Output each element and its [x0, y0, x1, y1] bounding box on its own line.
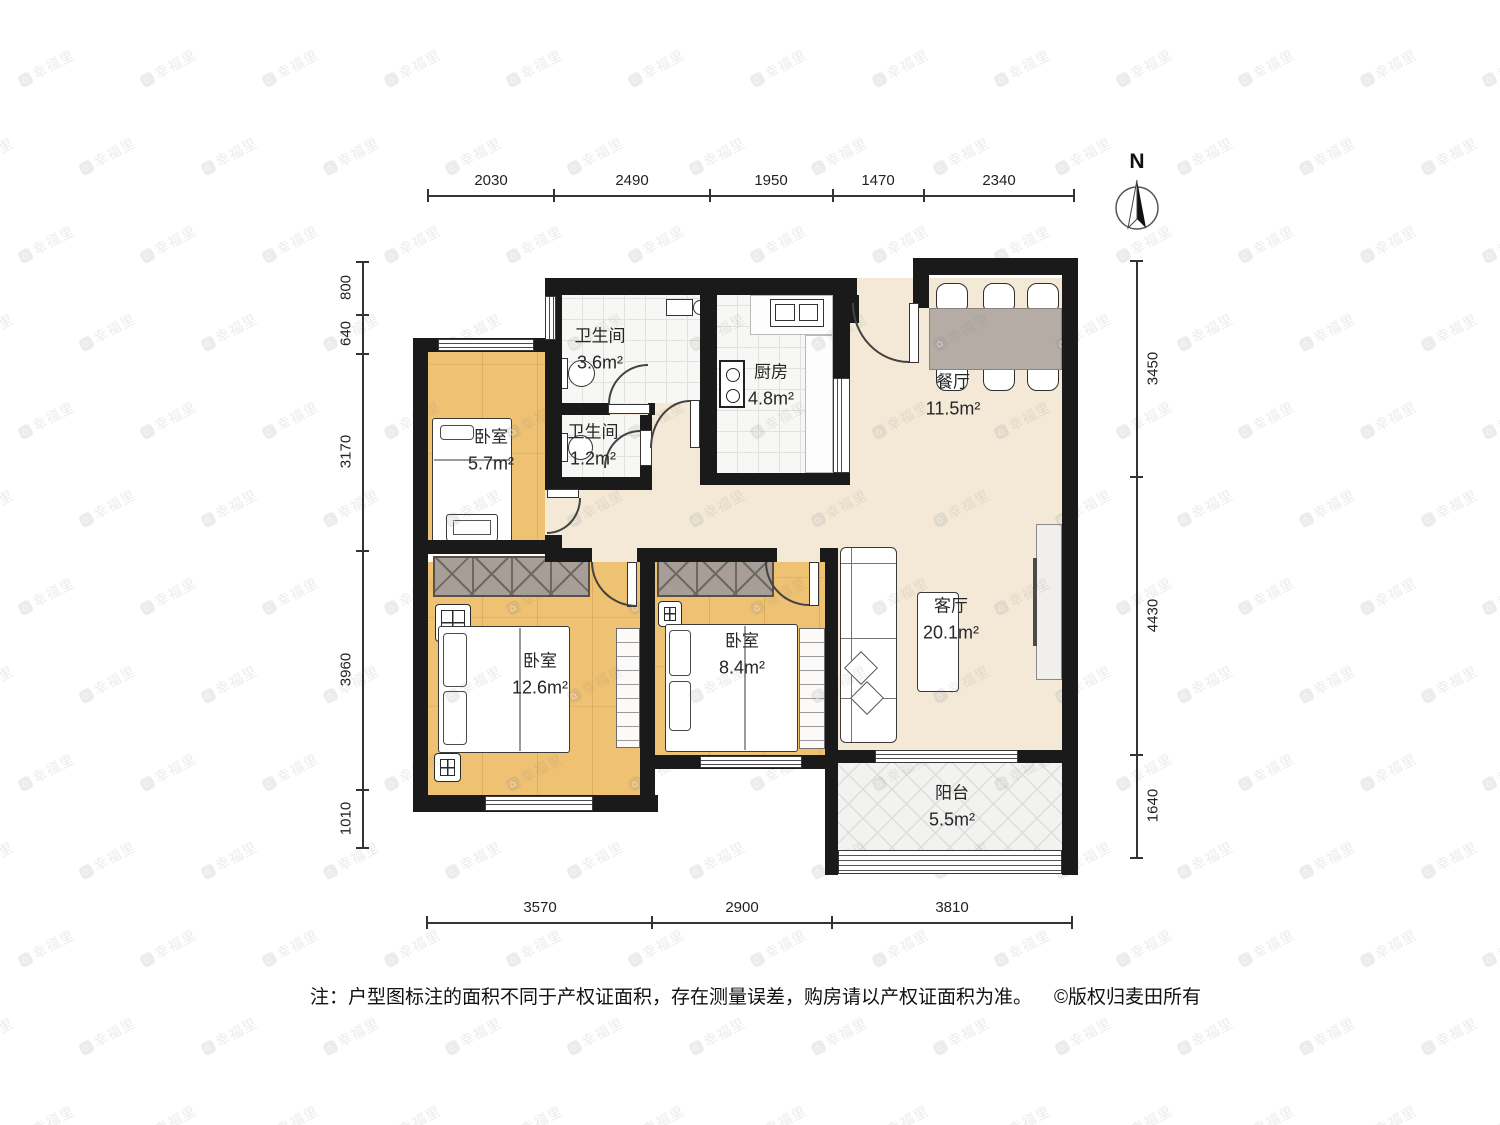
watermark-item: 幸福里 — [137, 1101, 200, 1125]
watermark-item: 幸福里 — [259, 221, 322, 267]
watermark-item: 幸福里 — [259, 573, 322, 619]
watermark-text: 幸福里 — [0, 1015, 16, 1050]
watermark-text: 幸福里 — [91, 663, 138, 698]
watermark-item: 幸福里 — [0, 0, 17, 3]
xingfuli-logo-icon — [200, 863, 218, 881]
xingfuli-logo-icon — [78, 1039, 96, 1057]
watermark-item: 幸福里 — [1113, 1101, 1176, 1125]
xingfuli-logo-icon — [444, 863, 462, 881]
watermark-text: 幸福里 — [274, 47, 321, 82]
door-leaf-entry — [909, 303, 919, 363]
xingfuli-logo-icon — [383, 423, 401, 441]
stove — [719, 360, 745, 408]
watermark-item: 幸福里 — [503, 1101, 566, 1125]
xingfuli-logo-icon — [688, 863, 706, 881]
xingfuli-logo-icon — [1176, 687, 1194, 705]
room-name: 客厅 — [923, 595, 979, 620]
watermark-item: 幸福里 — [1357, 925, 1420, 971]
stand-inset — [453, 520, 491, 535]
wall — [825, 548, 838, 875]
door-leaf — [640, 430, 652, 466]
watermark-item: 幸福里 — [869, 1101, 932, 1125]
room-label-bedroom-north: 卧室 5.7m² — [468, 426, 514, 477]
sofa — [840, 547, 897, 743]
watermark-item: 幸福里 — [747, 1101, 810, 1125]
watermark-item: 幸福里 — [15, 221, 78, 267]
watermark-text: 幸福里 — [1128, 927, 1175, 962]
wall — [413, 338, 428, 812]
watermark-text: 幸福里 — [30, 927, 77, 962]
watermark-text: 幸福里 — [518, 1103, 565, 1125]
watermark-text: 幸福里 — [91, 1015, 138, 1050]
xingfuli-logo-icon — [1298, 511, 1316, 529]
wall — [545, 403, 610, 415]
room-name: 厨房 — [748, 361, 794, 386]
wall — [825, 750, 875, 763]
watermark-text: 幸福里 — [213, 1015, 260, 1050]
watermark-item: 幸福里 — [15, 749, 78, 795]
watermark-item: 幸福里 — [1296, 485, 1359, 531]
watermark-text: 幸福里 — [945, 135, 992, 170]
watermark-item: 幸福里 — [1174, 309, 1237, 355]
watermark-item: 幸福里 — [1418, 0, 1481, 3]
xingfuli-logo-icon — [566, 863, 584, 881]
watermark-text: 幸福里 — [396, 927, 443, 962]
watermark-item: 幸福里 — [930, 0, 993, 3]
watermark-item: 幸福里 — [1296, 837, 1359, 883]
watermark-text: 幸福里 — [457, 1015, 504, 1050]
watermark-text: 幸福里 — [1189, 135, 1236, 170]
dim-value: 2340 — [959, 172, 1039, 189]
watermark-item: 幸福里 — [76, 485, 139, 531]
watermark-text: 幸福里 — [274, 927, 321, 962]
xingfuli-logo-icon — [1115, 247, 1133, 265]
watermark-item: 幸福里 — [1357, 45, 1420, 91]
watermark-item: 幸福里 — [991, 1101, 1054, 1125]
watermark-text: 幸福里 — [640, 1103, 687, 1125]
xingfuli-logo-icon — [566, 1039, 584, 1057]
xingfuli-logo-icon — [200, 159, 218, 177]
watermark-text: 幸福里 — [274, 399, 321, 434]
watermark-text: 幸福里 — [30, 1103, 77, 1125]
xingfuli-logo-icon — [627, 951, 645, 969]
watermark-item: 幸福里 — [137, 397, 200, 443]
watermark-text: 幸福里 — [1372, 47, 1419, 82]
xingfuli-logo-icon — [261, 599, 279, 617]
watermark-item: 幸福里 — [564, 837, 627, 883]
watermark-text: 幸福里 — [0, 839, 16, 874]
wall — [1018, 750, 1062, 763]
watermark-item: 幸福里 — [0, 837, 17, 883]
xingfuli-logo-icon — [1359, 423, 1377, 441]
watermark-item: 幸福里 — [1296, 661, 1359, 707]
watermark-item: 幸福里 — [198, 133, 261, 179]
xingfuli-logo-icon — [261, 71, 279, 89]
xingfuli-logo-icon — [1237, 951, 1255, 969]
watermark-text: 幸福里 — [1250, 927, 1297, 962]
xingfuli-logo-icon — [1237, 599, 1255, 617]
xingfuli-logo-icon — [1359, 247, 1377, 265]
note-text: 注：户型图标注的面积不同于产权证面积，存在测量误差，购房请以产权证面积为准。 — [310, 987, 1032, 1008]
watermark-text: 幸福里 — [1433, 1015, 1480, 1050]
room-label-dining: 餐厅 11.5m² — [926, 371, 981, 422]
watermark-item: 幸福里 — [1479, 749, 1500, 795]
xingfuli-logo-icon — [1481, 423, 1499, 441]
xingfuli-logo-icon — [993, 951, 1011, 969]
nightstand — [434, 753, 461, 782]
watermark-item: 幸福里 — [137, 221, 200, 267]
door-leaf — [608, 404, 650, 414]
watermark-item: 幸福里 — [869, 45, 932, 91]
room-name: 餐厅 — [926, 371, 981, 396]
watermark-text: 幸福里 — [1128, 1103, 1175, 1125]
watermark-item: 幸福里 — [625, 1101, 688, 1125]
watermark-item: 幸福里 — [0, 309, 17, 355]
kitchen-sink — [770, 299, 824, 327]
watermark-item: 幸福里 — [198, 0, 261, 3]
wall — [428, 540, 545, 554]
xingfuli-logo-icon — [1420, 511, 1438, 529]
xingfuli-logo-icon — [322, 863, 340, 881]
xingfuli-logo-icon — [322, 159, 340, 177]
watermark-item: 幸福里 — [1479, 397, 1500, 443]
watermark-text: 幸福里 — [701, 1015, 748, 1050]
xingfuli-logo-icon — [261, 247, 279, 265]
watermark-text: 幸福里 — [274, 575, 321, 610]
xingfuli-logo-icon — [566, 159, 584, 177]
xingfuli-logo-icon — [78, 863, 96, 881]
dim-value: 1950 — [731, 172, 811, 189]
watermark-text: 幸福里 — [457, 135, 504, 170]
watermark-item: 幸福里 — [381, 1101, 444, 1125]
watermark-text: 幸福里 — [518, 47, 565, 82]
room-name: 卧室 — [512, 650, 568, 675]
xingfuli-logo-icon — [1420, 335, 1438, 353]
watermark-item: 幸福里 — [0, 661, 17, 707]
watermark-item: 幸福里 — [15, 925, 78, 971]
xingfuli-logo-icon — [932, 1039, 950, 1057]
watermark-item: 幸福里 — [137, 749, 200, 795]
watermark-item: 幸福里 — [259, 397, 322, 443]
watermark-text: 幸福里 — [152, 575, 199, 610]
watermark-text: 幸福里 — [335, 487, 382, 522]
watermark-text: 幸福里 — [152, 399, 199, 434]
disclaimer-note: 注：户型图标注的面积不同于产权证面积，存在测量误差，购房请以产权证面积为准。©版… — [310, 982, 1230, 1009]
xingfuli-logo-icon — [383, 247, 401, 265]
sofa-pillow — [850, 681, 884, 715]
watermark-item: 幸福里 — [1235, 397, 1298, 443]
xingfuli-logo-icon — [17, 951, 35, 969]
wardrobe — [433, 556, 590, 597]
watermark-text: 幸福里 — [1433, 663, 1480, 698]
watermark-item: 幸福里 — [259, 1101, 322, 1125]
watermark-text: 幸福里 — [1250, 47, 1297, 82]
watermark-item: 幸福里 — [503, 45, 566, 91]
watermark-item: 幸福里 — [320, 133, 383, 179]
watermark-text: 幸福里 — [762, 223, 809, 258]
watermark-text: 幸福里 — [1433, 135, 1480, 170]
watermark-text: 幸福里 — [823, 1015, 870, 1050]
xingfuli-logo-icon — [1481, 599, 1499, 617]
watermark-item: 幸福里 — [1357, 1101, 1420, 1125]
watermark-text: 幸福里 — [701, 839, 748, 874]
watermark-text: 幸福里 — [152, 1103, 199, 1125]
dim-value: 1470 — [838, 172, 918, 189]
watermark-item: 幸福里 — [808, 0, 871, 3]
watermark-text: 幸福里 — [1311, 311, 1358, 346]
xingfuli-logo-icon — [505, 951, 523, 969]
xingfuli-logo-icon — [1481, 247, 1499, 265]
watermark-text: 幸福里 — [1494, 927, 1500, 962]
xingfuli-logo-icon — [1359, 599, 1377, 617]
watermark-item: 幸福里 — [1357, 397, 1420, 443]
xingfuli-logo-icon — [1359, 951, 1377, 969]
xingfuli-logo-icon — [17, 775, 35, 793]
watermark-text: 幸福里 — [91, 839, 138, 874]
watermark-item: 幸福里 — [259, 749, 322, 795]
copyright-text: ©版权归麦田所有 — [1054, 987, 1201, 1008]
watermark-text: 幸福里 — [1311, 663, 1358, 698]
watermark-text: 幸福里 — [1372, 1103, 1419, 1125]
watermark-item: 幸福里 — [1174, 485, 1237, 531]
xingfuli-logo-icon — [1115, 599, 1133, 617]
xingfuli-logo-icon — [1481, 951, 1499, 969]
watermark-text: 幸福里 — [945, 1015, 992, 1050]
dresser — [799, 628, 825, 749]
xingfuli-logo-icon — [749, 951, 767, 969]
window — [438, 339, 534, 351]
watermark-text: 幸福里 — [152, 47, 199, 82]
room-area: 5.7m² — [468, 450, 514, 476]
room-label-bedroom-second: 卧室 8.4m² — [719, 630, 765, 681]
room-name: 卧室 — [719, 630, 765, 655]
watermark-item: 幸福里 — [625, 925, 688, 971]
watermark-item: 幸福里 — [1174, 1013, 1237, 1059]
compass-north-label: N — [1103, 150, 1171, 174]
watermark-item: 幸福里 — [1174, 0, 1237, 3]
watermark-item: 幸福里 — [320, 1013, 383, 1059]
watermark-text: 幸福里 — [884, 47, 931, 82]
watermark-item: 幸福里 — [76, 661, 139, 707]
xingfuli-logo-icon — [261, 775, 279, 793]
watermark-text: 幸福里 — [274, 1103, 321, 1125]
watermark-text: 幸福里 — [1311, 1015, 1358, 1050]
xingfuli-logo-icon — [17, 599, 35, 617]
watermark-text: 幸福里 — [30, 47, 77, 82]
room-label-kitchen: 厨房 4.8m² — [748, 361, 794, 412]
watermark-item: 幸福里 — [686, 0, 749, 3]
watermark-text: 幸福里 — [1311, 135, 1358, 170]
watermark-item: 幸福里 — [381, 45, 444, 91]
watermark-item: 幸福里 — [1418, 309, 1481, 355]
xingfuli-logo-icon — [1237, 71, 1255, 89]
watermark-text: 幸福里 — [701, 135, 748, 170]
dim-value: 3960 — [338, 630, 355, 710]
watermark-text: 幸福里 — [213, 487, 260, 522]
watermark-item: 幸福里 — [0, 1013, 17, 1059]
watermark-text: 幸福里 — [1006, 223, 1053, 258]
xingfuli-logo-icon — [1298, 863, 1316, 881]
dim-value: 3570 — [500, 899, 580, 916]
xingfuli-logo-icon — [1237, 423, 1255, 441]
watermark-item: 幸福里 — [747, 45, 810, 91]
xingfuli-logo-icon — [1359, 71, 1377, 89]
watermark-text: 幸福里 — [1372, 751, 1419, 786]
xingfuli-logo-icon — [1420, 159, 1438, 177]
watermark-item: 幸福里 — [1235, 45, 1298, 91]
xingfuli-logo-icon — [1237, 775, 1255, 793]
xingfuli-logo-icon — [688, 1039, 706, 1057]
wall — [545, 548, 592, 562]
watermark-item: 幸福里 — [198, 837, 261, 883]
sink-bowl — [799, 304, 818, 321]
watermark-item: 幸福里 — [1418, 133, 1481, 179]
xingfuli-logo-icon — [932, 159, 950, 177]
watermark-text: 幸福里 — [396, 1103, 443, 1125]
room-name: 卧室 — [468, 426, 514, 451]
watermark-item: 幸福里 — [1235, 925, 1298, 971]
watermark-item: 幸福里 — [686, 837, 749, 883]
room-area: 5.5m² — [929, 806, 975, 832]
watermark-item: 幸福里 — [991, 45, 1054, 91]
xingfuli-logo-icon — [1359, 775, 1377, 793]
watermark-text: 幸福里 — [396, 47, 443, 82]
watermark-text: 幸福里 — [579, 839, 626, 874]
watermark-text: 幸福里 — [0, 487, 16, 522]
xingfuli-logo-icon — [1176, 863, 1194, 881]
xingfuli-logo-icon — [993, 71, 1011, 89]
xingfuli-logo-icon — [200, 1039, 218, 1057]
xingfuli-logo-icon — [139, 599, 157, 617]
wall — [637, 548, 655, 562]
watermark-text: 幸福里 — [1250, 223, 1297, 258]
dresser — [616, 628, 640, 748]
watermark-text: 幸福里 — [457, 839, 504, 874]
burner — [726, 389, 740, 403]
xingfuli-logo-icon — [17, 247, 35, 265]
dim-value: 2900 — [702, 899, 782, 916]
tv-cabinet — [1036, 524, 1062, 680]
watermark-item: 幸福里 — [15, 45, 78, 91]
xingfuli-logo-icon — [383, 71, 401, 89]
door-leaf — [690, 400, 700, 448]
tv-icon — [1033, 558, 1037, 646]
balcony-sliding-door — [875, 750, 1018, 763]
xingfuli-logo-icon — [1481, 775, 1499, 793]
watermark-text: 幸福里 — [0, 135, 16, 170]
bedside-stand — [446, 514, 498, 541]
watermark-item: 幸福里 — [15, 397, 78, 443]
window — [485, 796, 593, 811]
xingfuli-logo-icon — [1237, 247, 1255, 265]
watermark-item: 幸福里 — [320, 0, 383, 3]
xingfuli-logo-icon — [1115, 423, 1133, 441]
watermark-text: 幸福里 — [1189, 487, 1236, 522]
watermark-text: 幸福里 — [91, 487, 138, 522]
dim-value: 3450 — [1145, 329, 1162, 409]
xingfuli-logo-icon — [322, 511, 340, 529]
watermark-text: 幸福里 — [1372, 399, 1419, 434]
watermark-text: 幸福里 — [640, 223, 687, 258]
watermark-text: 幸福里 — [30, 575, 77, 610]
watermark-text: 幸福里 — [0, 663, 16, 698]
room-area: 8.4m² — [719, 654, 765, 680]
door-leaf — [547, 489, 579, 498]
xingfuli-logo-icon — [1298, 159, 1316, 177]
sofa-backrest-line — [851, 548, 852, 742]
watermark-item: 幸福里 — [137, 573, 200, 619]
watermark-item: 幸福里 — [625, 221, 688, 267]
xingfuli-logo-icon — [139, 775, 157, 793]
xingfuli-logo-icon — [1481, 71, 1499, 89]
room-name: 阳台 — [929, 782, 975, 807]
dim-value: 2490 — [592, 172, 672, 189]
watermark-item: 幸福里 — [1174, 661, 1237, 707]
watermark-item: 幸福里 — [747, 221, 810, 267]
wall — [640, 562, 655, 812]
watermark-item: 幸福里 — [0, 133, 17, 179]
watermark-item: 幸福里 — [747, 925, 810, 971]
watermark-text: 幸福里 — [1311, 487, 1358, 522]
watermark-item: 幸福里 — [320, 485, 383, 531]
xingfuli-logo-icon — [78, 159, 96, 177]
room-area: 4.8m² — [748, 385, 794, 411]
watermark-item: 幸福里 — [1174, 133, 1237, 179]
watermark-text: 幸福里 — [1494, 751, 1500, 786]
xingfuli-logo-icon — [1420, 687, 1438, 705]
watermark-text: 幸福里 — [30, 751, 77, 786]
xingfuli-logo-icon — [1115, 951, 1133, 969]
watermark-text: 幸福里 — [1189, 663, 1236, 698]
watermark-item: 幸福里 — [1418, 1013, 1481, 1059]
watermark-text: 幸福里 — [1006, 1103, 1053, 1125]
xingfuli-logo-icon — [139, 423, 157, 441]
dim-value: 3170 — [338, 412, 355, 492]
watermark-item: 幸福里 — [442, 837, 505, 883]
pillow — [669, 681, 691, 731]
watermark-item: 幸福里 — [1296, 1013, 1359, 1059]
xingfuli-logo-icon — [17, 71, 35, 89]
watermark-item: 幸福里 — [1479, 1101, 1500, 1125]
watermark-text: 幸福里 — [1067, 1015, 1114, 1050]
watermark-text: 幸福里 — [579, 1015, 626, 1050]
wall — [1062, 258, 1078, 875]
xingfuli-logo-icon — [1176, 335, 1194, 353]
watermark-item: 幸福里 — [198, 661, 261, 707]
xingfuli-logo-icon — [505, 71, 523, 89]
pillow — [443, 633, 467, 687]
xingfuli-logo-icon — [1298, 1039, 1316, 1057]
watermark-item: 幸福里 — [381, 221, 444, 267]
xingfuli-logo-icon — [383, 951, 401, 969]
xingfuli-logo-icon — [749, 247, 767, 265]
watermark-item: 幸福里 — [564, 1013, 627, 1059]
watermark-text: 幸福里 — [1189, 311, 1236, 346]
xingfuli-logo-icon — [1420, 863, 1438, 881]
watermark-text: 幸福里 — [1311, 839, 1358, 874]
room-label-living: 客厅 20.1m² — [923, 595, 979, 646]
watermark-text: 幸福里 — [1006, 927, 1053, 962]
watermark-text: 幸福里 — [335, 135, 382, 170]
xingfuli-logo-icon — [17, 423, 35, 441]
watermark-item: 幸福里 — [503, 221, 566, 267]
watermark-item: 幸福里 — [259, 925, 322, 971]
watermark-text: 幸福里 — [213, 663, 260, 698]
room-label-balcony: 阳台 5.5m² — [929, 782, 975, 833]
dim-value: 4430 — [1145, 576, 1162, 656]
watermark-item: 幸福里 — [1418, 837, 1481, 883]
watermark-text: 幸福里 — [1372, 575, 1419, 610]
